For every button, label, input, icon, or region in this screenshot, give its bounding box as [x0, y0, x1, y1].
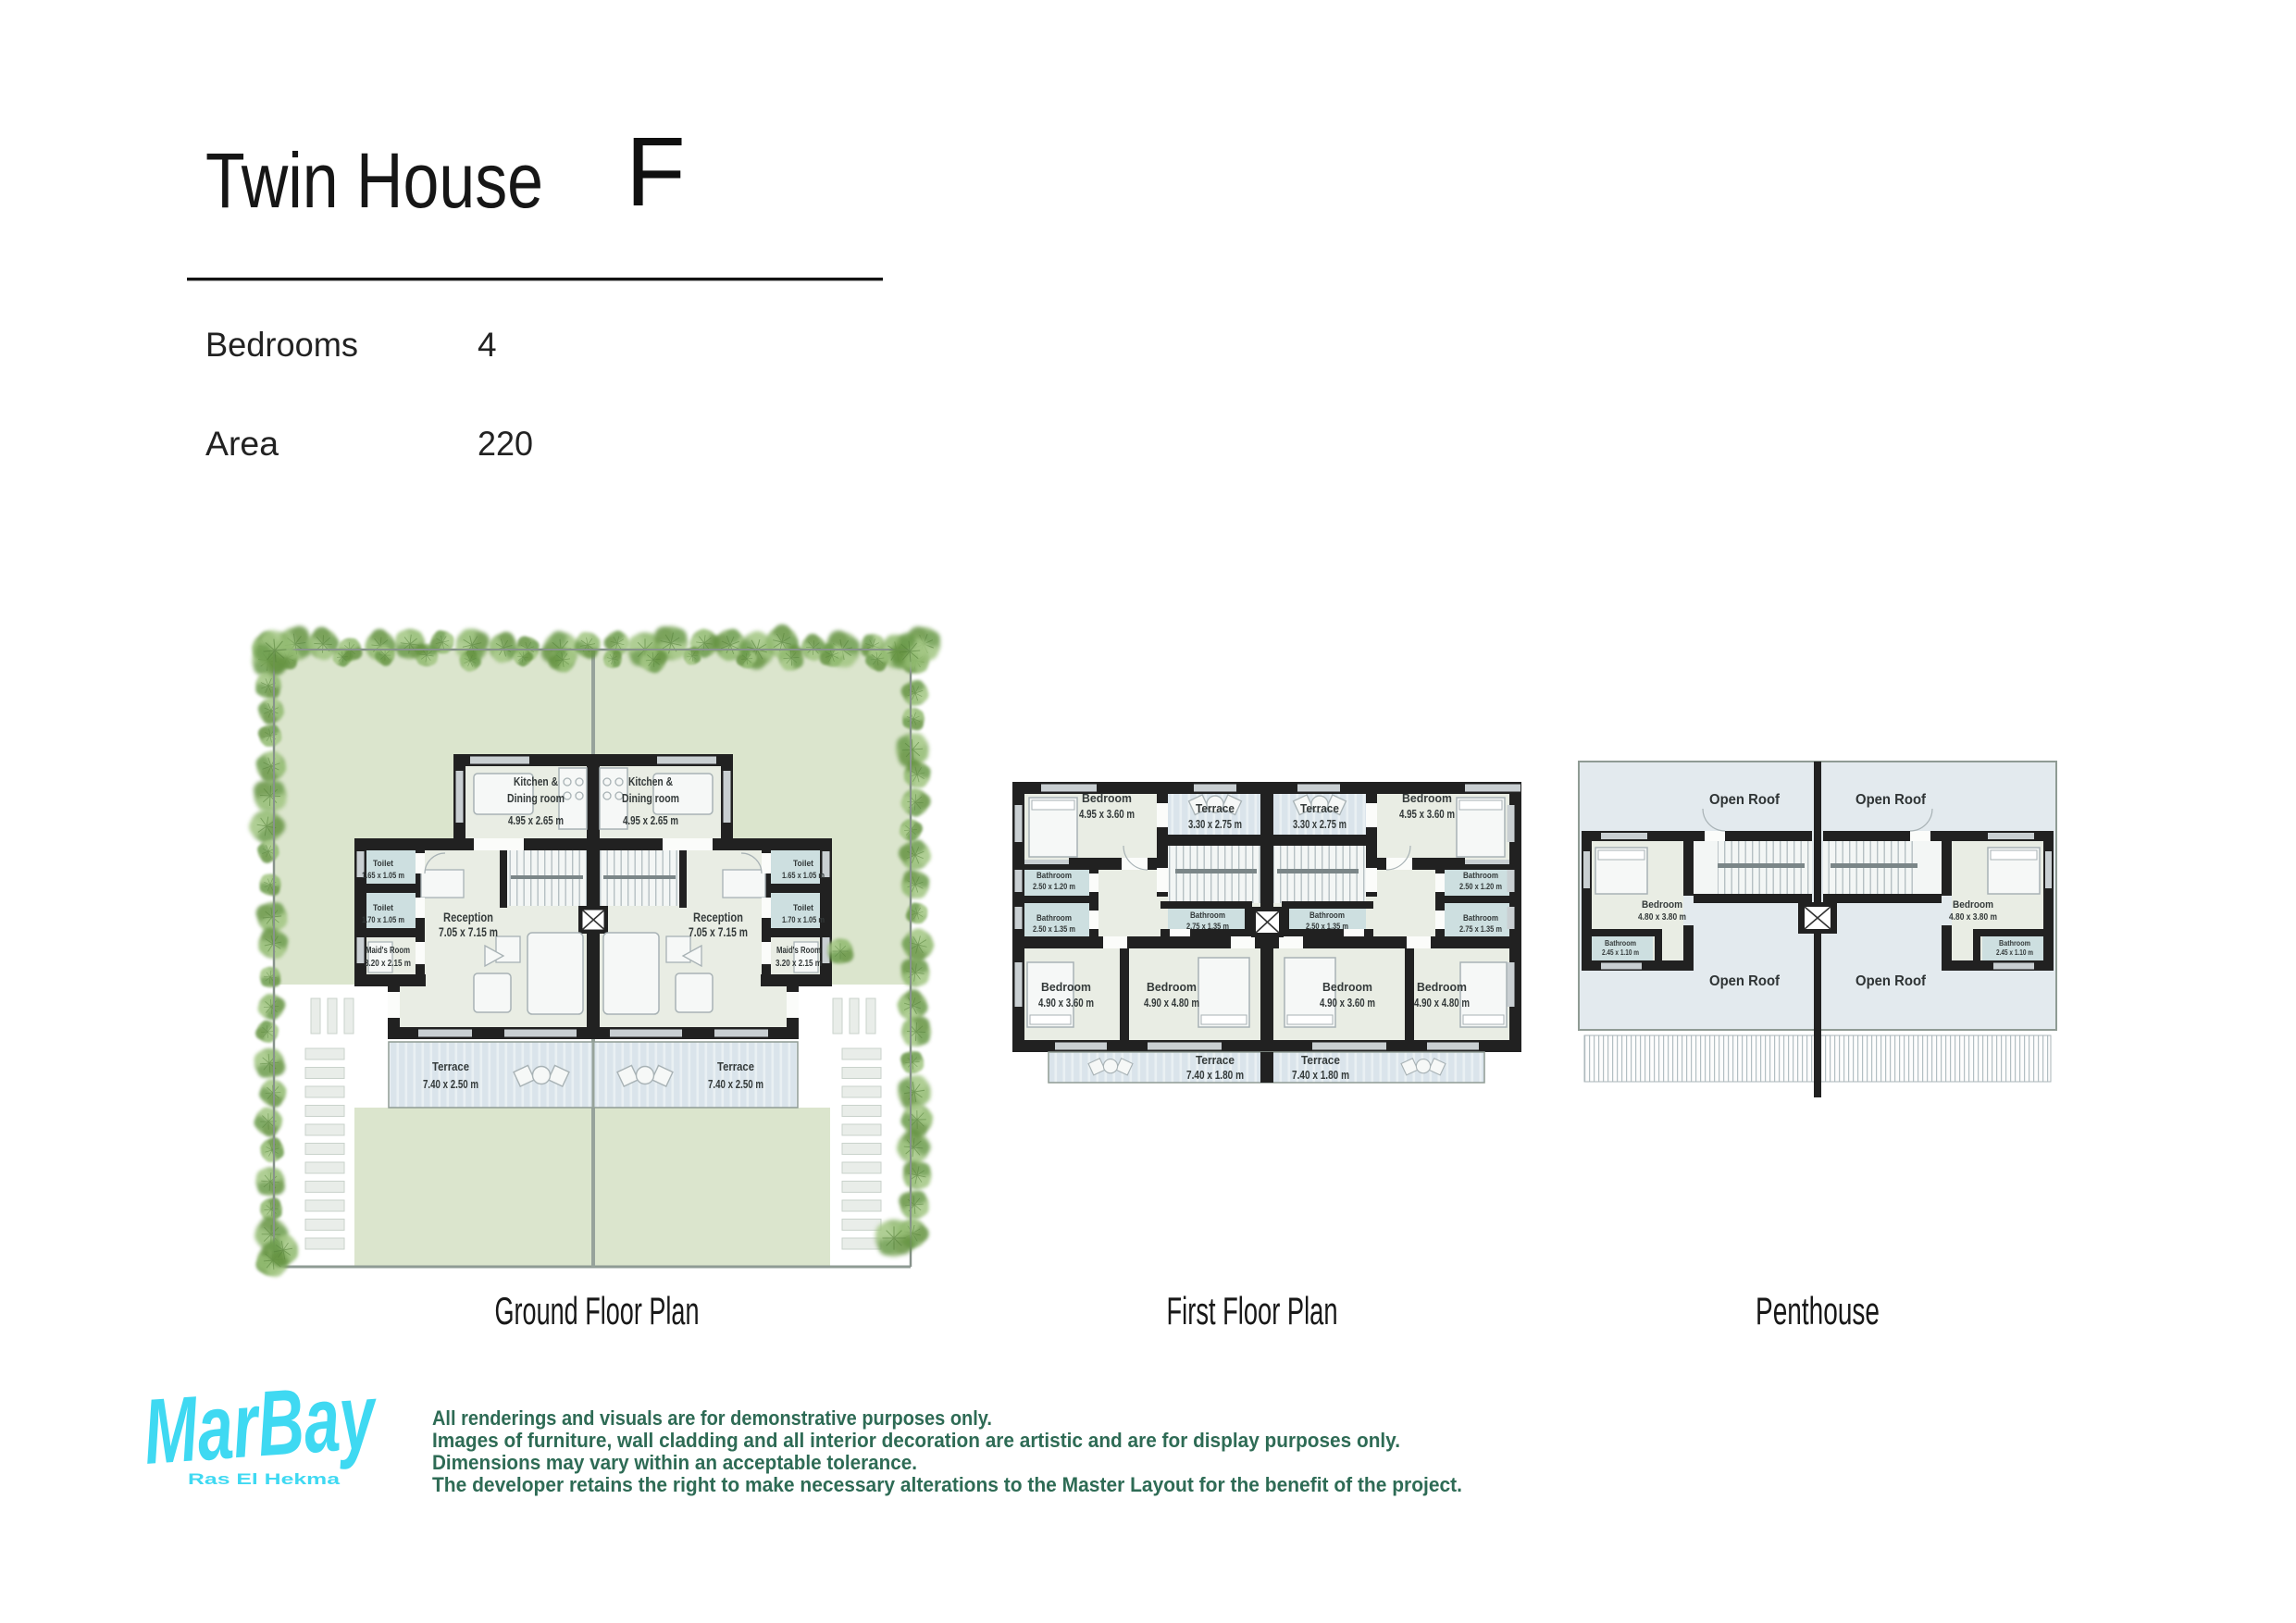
svg-text:Terrace: Terrace: [717, 1060, 754, 1073]
svg-text:Ground Floor Plan: Ground Floor Plan: [495, 1289, 700, 1332]
svg-text:Bathroom: Bathroom: [1463, 913, 1498, 923]
svg-text:Twin House: Twin House: [205, 137, 543, 224]
svg-text:2.75 x 1.35 m: 2.75 x 1.35 m: [1186, 922, 1229, 931]
svg-text:Open Roof: Open Roof: [1855, 973, 1927, 989]
svg-text:Bedroom: Bedroom: [1322, 980, 1372, 994]
svg-text:3.20 x 2.15 m: 3.20 x 2.15 m: [365, 959, 411, 969]
svg-text:Bathroom: Bathroom: [1036, 871, 1072, 880]
svg-text:Maid's Room: Maid's Room: [776, 946, 821, 956]
svg-text:7.05 x 7.15 m: 7.05 x 7.15 m: [689, 925, 748, 939]
svg-text:MarBay: MarBay: [141, 1365, 381, 1484]
svg-text:4: 4: [478, 326, 497, 364]
svg-text:First Floor Plan: First Floor Plan: [1167, 1289, 1338, 1332]
svg-text:4.90 x 3.60 m: 4.90 x 3.60 m: [1320, 997, 1375, 1010]
svg-text:Open Roof: Open Roof: [1709, 792, 1781, 808]
svg-text:2.45 x 1.10 m: 2.45 x 1.10 m: [1602, 948, 1639, 957]
svg-text:Images of furniture, wall clad: Images of furniture, wall cladding and a…: [432, 1429, 1400, 1452]
svg-text:Bathroom: Bathroom: [1605, 938, 1636, 948]
svg-text:220: 220: [478, 425, 533, 463]
svg-text:1.70 x 1.05 m: 1.70 x 1.05 m: [782, 915, 825, 924]
svg-text:Toilet: Toilet: [793, 859, 813, 868]
svg-text:7.05 x 7.15 m: 7.05 x 7.15 m: [439, 925, 498, 939]
svg-text:Bedroom: Bedroom: [1147, 980, 1197, 994]
svg-text:7.40 x 1.80 m: 7.40 x 1.80 m: [1292, 1068, 1349, 1082]
svg-text:F: F: [626, 118, 686, 227]
svg-text:Penthouse: Penthouse: [1756, 1289, 1880, 1332]
svg-text:2.50 x 1.20 m: 2.50 x 1.20 m: [1459, 882, 1502, 891]
svg-text:2.50 x 1.35 m: 2.50 x 1.35 m: [1033, 924, 1075, 934]
svg-text:3.30 x 2.75 m: 3.30 x 2.75 m: [1293, 817, 1347, 831]
svg-text:2.75 x 1.35 m: 2.75 x 1.35 m: [1459, 924, 1502, 934]
svg-text:3.30 x 2.75 m: 3.30 x 2.75 m: [1188, 817, 1242, 831]
svg-text:Toilet: Toilet: [373, 903, 393, 912]
svg-text:Terrace: Terrace: [432, 1060, 469, 1073]
svg-text:4.95 x 3.60 m: 4.95 x 3.60 m: [1399, 808, 1455, 821]
svg-text:Bedroom: Bedroom: [1642, 899, 1682, 911]
svg-text:4.95 x 2.65 m: 4.95 x 2.65 m: [508, 813, 564, 827]
svg-text:1.70 x 1.05 m: 1.70 x 1.05 m: [362, 915, 404, 924]
svg-text:Dimensions may vary within an: Dimensions may vary within an acceptable…: [432, 1451, 917, 1474]
svg-text:Dining room: Dining room: [622, 791, 679, 805]
svg-text:Reception: Reception: [443, 911, 493, 924]
svg-text:7.40 x 2.50 m: 7.40 x 2.50 m: [708, 1078, 763, 1091]
svg-text:2.50 x 1.35 m: 2.50 x 1.35 m: [1306, 922, 1348, 931]
svg-text:2.45 x 1.10 m: 2.45 x 1.10 m: [1996, 948, 2033, 957]
svg-text:4.90 x 4.80 m: 4.90 x 4.80 m: [1144, 997, 1199, 1010]
svg-text:7.40 x 2.50 m: 7.40 x 2.50 m: [423, 1078, 478, 1091]
svg-text:Toilet: Toilet: [793, 903, 813, 912]
svg-text:4.95 x 2.65 m: 4.95 x 2.65 m: [623, 813, 678, 827]
svg-text:All renderings and visuals are: All renderings and visuals are for demon…: [432, 1406, 992, 1430]
svg-text:Terrace: Terrace: [1300, 801, 1339, 815]
svg-text:Terrace: Terrace: [1196, 801, 1235, 815]
svg-text:4.80 x 3.80 m: 4.80 x 3.80 m: [1949, 911, 1997, 923]
svg-text:The developer retains the righ: The developer retains the right to make …: [432, 1473, 1462, 1496]
svg-text:Bathroom: Bathroom: [1036, 913, 1072, 923]
svg-text:1.65 x 1.05 m: 1.65 x 1.05 m: [362, 871, 404, 880]
svg-text:Maid's Room: Maid's Room: [366, 946, 410, 956]
svg-text:1.65 x 1.05 m: 1.65 x 1.05 m: [782, 871, 825, 880]
svg-text:4.95 x 3.60 m: 4.95 x 3.60 m: [1079, 808, 1135, 821]
svg-text:Bedrooms: Bedrooms: [205, 326, 358, 364]
svg-text:Bathroom: Bathroom: [1309, 911, 1345, 920]
svg-text:Toilet: Toilet: [373, 859, 393, 868]
svg-text:4.90 x 3.60 m: 4.90 x 3.60 m: [1038, 997, 1094, 1010]
svg-text:Area: Area: [205, 425, 279, 463]
svg-text:Bathroom: Bathroom: [1190, 911, 1225, 920]
svg-text:4.80 x 3.80 m: 4.80 x 3.80 m: [1638, 911, 1686, 923]
svg-text:Bedroom: Bedroom: [1417, 980, 1467, 994]
svg-text:3.20 x 2.15 m: 3.20 x 2.15 m: [776, 959, 822, 969]
svg-text:Reception: Reception: [693, 911, 743, 924]
svg-text:Bedroom: Bedroom: [1041, 980, 1091, 994]
svg-text:4.90 x 4.80 m: 4.90 x 4.80 m: [1414, 997, 1470, 1010]
svg-text:Bedroom: Bedroom: [1402, 791, 1452, 805]
svg-text:Ras El Hekma: Ras El Hekma: [188, 1470, 341, 1488]
svg-text:7.40 x 1.80 m: 7.40 x 1.80 m: [1186, 1068, 1244, 1082]
svg-text:2.50 x 1.20 m: 2.50 x 1.20 m: [1033, 882, 1075, 891]
svg-text:Bedroom: Bedroom: [1082, 791, 1132, 805]
svg-text:Terrace: Terrace: [1301, 1053, 1340, 1067]
svg-text:Kitchen &: Kitchen &: [514, 774, 558, 788]
svg-text:Dining room: Dining room: [507, 791, 565, 805]
svg-text:Bathroom: Bathroom: [1463, 871, 1498, 880]
svg-text:Bedroom: Bedroom: [1953, 899, 1993, 911]
svg-text:Bathroom: Bathroom: [1999, 938, 2030, 948]
svg-text:Kitchen &: Kitchen &: [628, 774, 673, 788]
svg-text:Terrace: Terrace: [1196, 1053, 1235, 1067]
svg-text:Open Roof: Open Roof: [1855, 792, 1927, 808]
svg-text:Open Roof: Open Roof: [1709, 973, 1781, 989]
